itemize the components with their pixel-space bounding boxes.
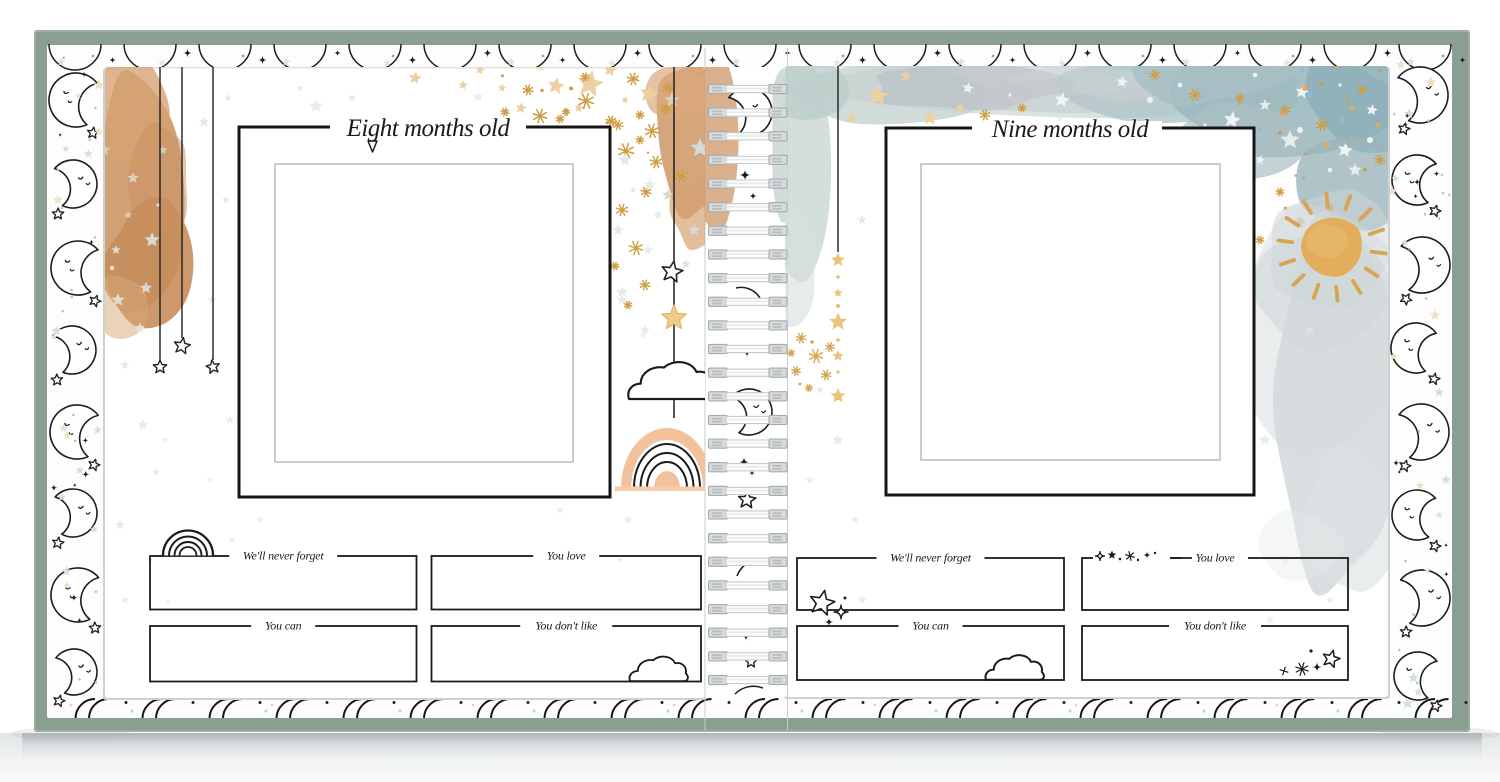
- svg-text:You don't like: You don't like: [1184, 619, 1247, 633]
- svg-text:You don't like: You don't like: [535, 619, 598, 633]
- svg-text:We'll never forget: We'll never forget: [243, 549, 325, 563]
- svg-text:You love: You love: [547, 549, 587, 563]
- svg-text:You love: You love: [1196, 551, 1236, 565]
- svg-text:You can: You can: [912, 619, 949, 633]
- svg-text:Eight months old: Eight months old: [346, 115, 511, 142]
- svg-text:Nine months old: Nine months old: [991, 116, 1149, 143]
- svg-text:You can: You can: [265, 619, 302, 633]
- svg-text:We'll never forget: We'll never forget: [890, 551, 972, 565]
